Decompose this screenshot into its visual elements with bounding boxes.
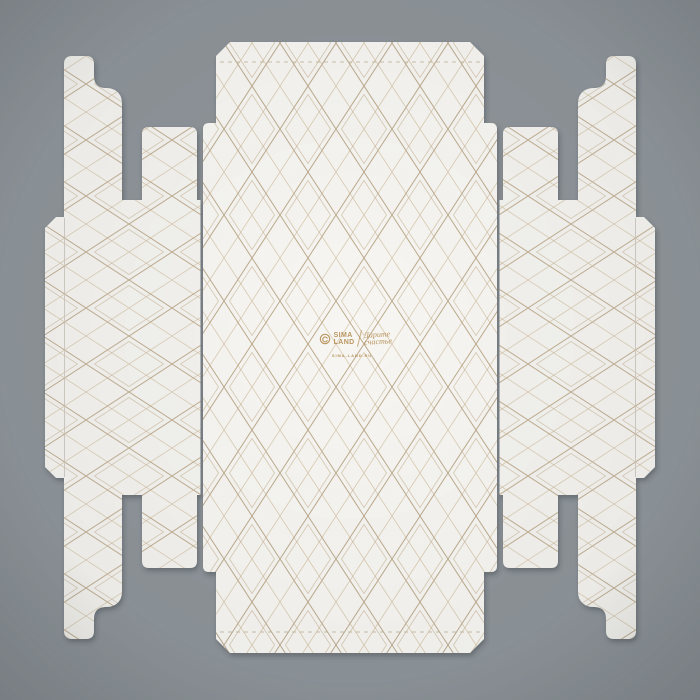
brand-website: SIMA-LAND.RU [328,354,377,358]
brand-name-line2: LAND [334,339,355,346]
product-photo: SIMA LAND Дарите счастье SIMA-LAND.RU [0,0,700,700]
brand-name-line1: SIMA [334,332,355,339]
sima-land-logo-icon [319,333,331,345]
brand-name: SIMA LAND [334,332,355,346]
brand-divider [357,330,362,347]
brand-tagline: Дарите счастье [363,330,391,345]
brand-tagline-line2: счастье [364,337,392,345]
brand-stamp: SIMA LAND Дарите счастье SIMA-LAND.RU [310,330,400,362]
